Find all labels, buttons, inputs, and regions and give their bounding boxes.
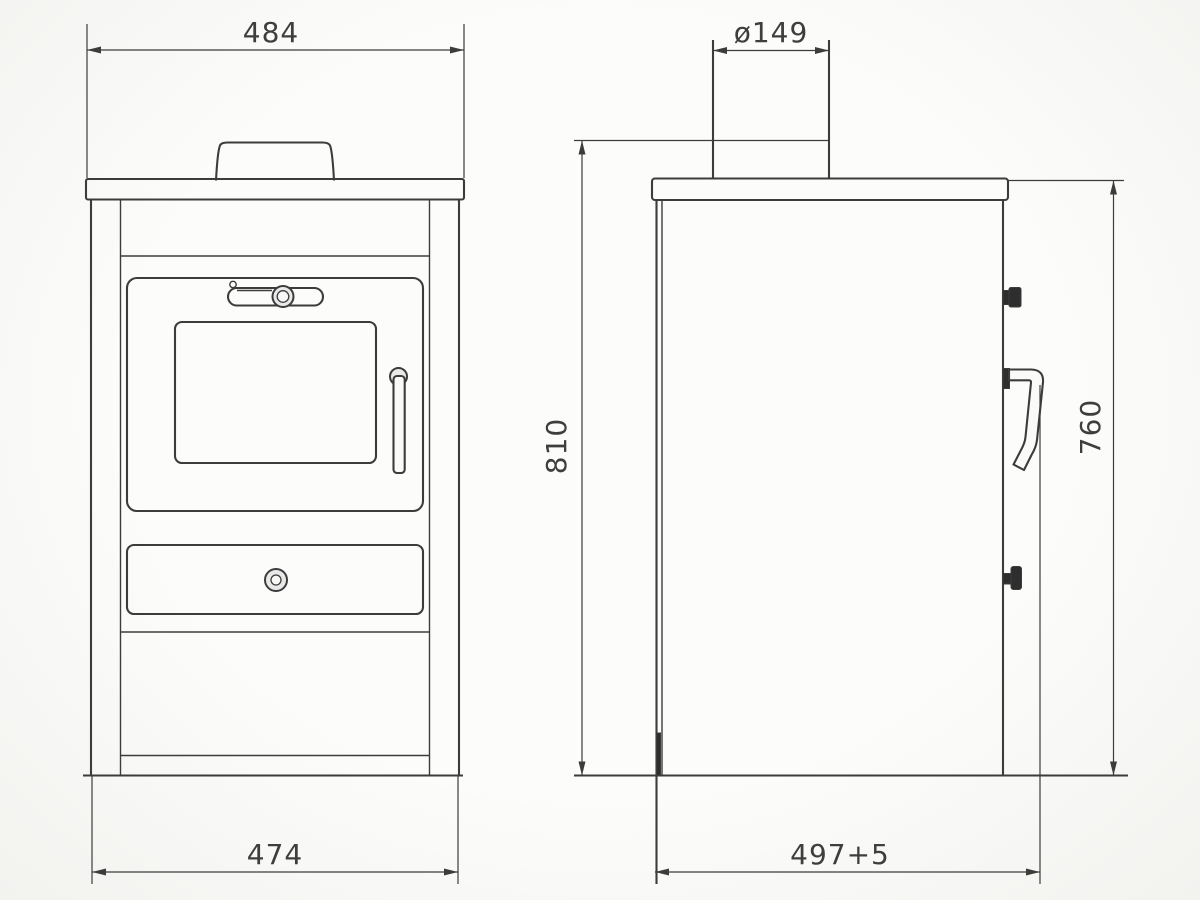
dimension-rear-height: 760 (1008, 181, 1124, 776)
upper-knob (1003, 288, 1021, 308)
latch-pin-icon (230, 281, 236, 287)
dimension-front-top-width: 484 (87, 16, 464, 178)
arrowhead-right (815, 47, 829, 54)
lower-knob (1003, 567, 1022, 590)
ash-drawer (127, 545, 423, 614)
dimension-flue-diameter: ø149 (713, 16, 829, 54)
arrowhead-left (92, 869, 106, 876)
leveling-foot (657, 733, 661, 775)
dimension-depth: 497+5 (655, 385, 1040, 884)
body-side-walls (91, 200, 459, 776)
front-panel-divisions (121, 256, 430, 756)
stove-dimension-drawing: 484 (0, 0, 1200, 900)
flue-pipe (713, 40, 829, 179)
arrowhead-left (87, 47, 101, 54)
arrowhead-top (579, 141, 586, 155)
latch-hub-center (277, 291, 289, 303)
upper-knob-collar (1003, 291, 1009, 305)
side-view: ø149 810 (540, 16, 1128, 884)
handle-bar (394, 376, 405, 473)
top-lid (216, 143, 334, 181)
dimension-overall-height: 810 (540, 141, 829, 776)
door-latch (228, 281, 323, 307)
dimension-label-front-top-width: 484 (243, 16, 299, 49)
dimension-label-flue-diameter: ø149 (734, 16, 809, 49)
dimension-label-overall-height: 810 (540, 418, 573, 474)
handle-rod (1009, 370, 1043, 471)
top-plate-front (86, 179, 464, 200)
front-panel-edges (121, 200, 430, 776)
dimension-label-rear-height: 760 (1074, 399, 1107, 455)
fire-door (127, 278, 423, 511)
drawer-knob-center (271, 575, 281, 585)
door-glass-window (175, 322, 376, 463)
lower-knob-head (1011, 567, 1022, 590)
door-handle (390, 368, 407, 473)
arrowhead-right (444, 869, 458, 876)
arrowhead-right (450, 47, 464, 54)
dimension-front-bottom-width: 474 (92, 776, 458, 885)
technical-drawing-page: 484 (0, 0, 1200, 900)
front-view: 484 (83, 16, 464, 884)
flue-pipe-walls (713, 40, 829, 179)
arrowhead-right (1026, 869, 1040, 876)
arrowhead-bottom (1110, 762, 1117, 776)
dimension-label-front-bottom-width: 474 (247, 838, 303, 871)
arrowhead-bottom (579, 762, 586, 776)
side-door-handle (1003, 369, 1043, 471)
dimension-label-depth: 497+5 (790, 838, 890, 871)
top-plate-side (652, 179, 1008, 201)
door-frame (127, 278, 423, 511)
upper-knob-head (1009, 288, 1021, 308)
lower-knob-stem (1003, 574, 1011, 585)
arrowhead-top (1110, 181, 1117, 195)
arrowhead-left (713, 47, 727, 54)
